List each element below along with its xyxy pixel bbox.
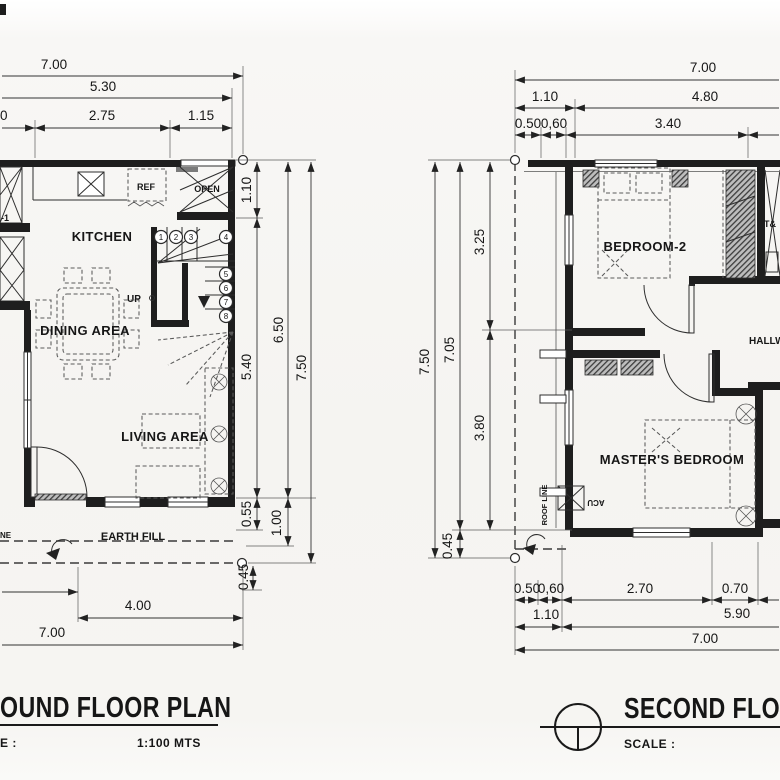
sf-top-dimensions: 7.00 1.10 4.80 0.50 0,60 3.40 bbox=[515, 60, 779, 158]
kitchen-label: KITCHEN bbox=[72, 229, 133, 244]
step-5: 5 bbox=[224, 270, 229, 279]
scan-artifact bbox=[0, 4, 6, 15]
floor-plan-drawing: -1 REF OPEN bbox=[0, 0, 780, 780]
gf-right-dimensions: 1.10 5.40 0.55 0.45 6.50 1.00 7.50 bbox=[236, 160, 316, 590]
gf-top-dimensions: 7.00 5.30 0 2.75 1.15 bbox=[0, 57, 243, 158]
stair-down-arrow-icon bbox=[198, 296, 210, 308]
slope-arrow-icon bbox=[46, 540, 72, 560]
left-strip bbox=[0, 167, 30, 310]
dim: 0.70 bbox=[722, 581, 748, 596]
dim: 0,60 bbox=[541, 116, 567, 131]
dim: 0.55 bbox=[239, 501, 254, 527]
dim: 1.15 bbox=[188, 108, 214, 123]
slope-arrow-icon bbox=[523, 535, 545, 555]
dim: 2.75 bbox=[89, 108, 115, 123]
dim: 0,60 bbox=[538, 581, 564, 596]
dim: 7.00 bbox=[690, 60, 716, 75]
step-1: 1 bbox=[159, 233, 164, 242]
dining-label: DINING AREA bbox=[40, 323, 130, 338]
second-floor-plan: T& ACU BEDROOM-2 MASTER'S BEDROOM HALLWA… bbox=[417, 60, 780, 751]
step-6: 6 bbox=[224, 284, 229, 293]
dim: 6.50 bbox=[271, 317, 286, 343]
master-label: MASTER'S BEDROOM bbox=[600, 452, 745, 467]
sf-title: SECOND FLOOR bbox=[624, 691, 780, 724]
toilet-label: T& bbox=[764, 219, 776, 229]
entry-door bbox=[31, 447, 87, 500]
roof-line-partial-label: NE bbox=[0, 531, 12, 540]
gf-bottom-dimensions: 4.00 7.00 bbox=[2, 567, 243, 650]
master-closet bbox=[621, 360, 653, 375]
step-8: 8 bbox=[224, 312, 229, 321]
dim: 7.00 bbox=[39, 625, 65, 640]
dim: 1.10 bbox=[532, 89, 558, 104]
bedroom2-label: BEDROOM-2 bbox=[603, 239, 686, 254]
dim: 7.00 bbox=[41, 57, 67, 72]
ref-label: REF bbox=[137, 182, 156, 192]
master-closet bbox=[585, 360, 617, 375]
step-3: 3 bbox=[189, 233, 194, 242]
corner-marker bbox=[511, 156, 520, 165]
dim: 7.50 bbox=[417, 349, 432, 375]
room1-partial-label: -1 bbox=[1, 213, 9, 223]
dim: 7.50 bbox=[294, 355, 309, 381]
gf-scale-label: E : bbox=[0, 736, 17, 750]
dim: 0.45 bbox=[236, 564, 251, 590]
dim: 4.00 bbox=[125, 598, 151, 613]
open-label: OPEN bbox=[194, 184, 220, 194]
step-2: 2 bbox=[174, 233, 179, 242]
dim: 0 bbox=[0, 108, 8, 123]
dim: 3.25 bbox=[472, 229, 487, 255]
dim: 7.00 bbox=[692, 631, 718, 646]
step-7: 7 bbox=[224, 298, 229, 307]
dim: 0.50 bbox=[515, 116, 541, 131]
dim: 2.70 bbox=[627, 581, 653, 596]
living-label: LIVING AREA bbox=[121, 429, 209, 444]
dim: 4.80 bbox=[692, 89, 718, 104]
corner-marker bbox=[511, 554, 520, 563]
bedroom2-bed bbox=[583, 168, 688, 278]
sf-scale-label: SCALE : bbox=[624, 737, 676, 751]
acu-label: ACU bbox=[587, 498, 605, 507]
dim: 5.90 bbox=[724, 606, 750, 621]
dim: 0.45 bbox=[440, 533, 455, 559]
gf-scale-value: 1:100 MTS bbox=[137, 736, 201, 750]
dim: 0.50 bbox=[514, 581, 540, 596]
gf-title-block: OUND FLOOR PLAN E : 1:100 MTS bbox=[0, 690, 231, 750]
sf-bottom-dimensions: 0.50 0,60 2.70 0.70 1.10 5.90 7.00 bbox=[514, 542, 779, 655]
dim: 1.00 bbox=[269, 510, 284, 536]
dim: 1.10 bbox=[239, 177, 254, 203]
bedroom2-door bbox=[644, 285, 694, 333]
dim: 5.30 bbox=[90, 79, 116, 94]
roof-line-label: ROOF LINE bbox=[540, 485, 549, 526]
closet bbox=[723, 170, 755, 278]
master-door bbox=[664, 354, 714, 402]
dim: 3.40 bbox=[655, 116, 681, 131]
dim: 7.05 bbox=[442, 337, 457, 363]
floor-plan-sheet: -1 REF OPEN bbox=[0, 0, 780, 780]
sf-title-block: SECOND FLOOR SCALE : bbox=[540, 691, 780, 751]
dim: 5.40 bbox=[239, 354, 254, 380]
ground-floor-plan: -1 REF OPEN bbox=[0, 57, 316, 750]
dim: 1.10 bbox=[533, 607, 559, 622]
dim: 3.80 bbox=[472, 415, 487, 441]
step-4: 4 bbox=[224, 233, 229, 242]
hallway-label: HALLWAY bbox=[749, 336, 780, 347]
gf-title: OUND FLOOR PLAN bbox=[0, 690, 231, 723]
